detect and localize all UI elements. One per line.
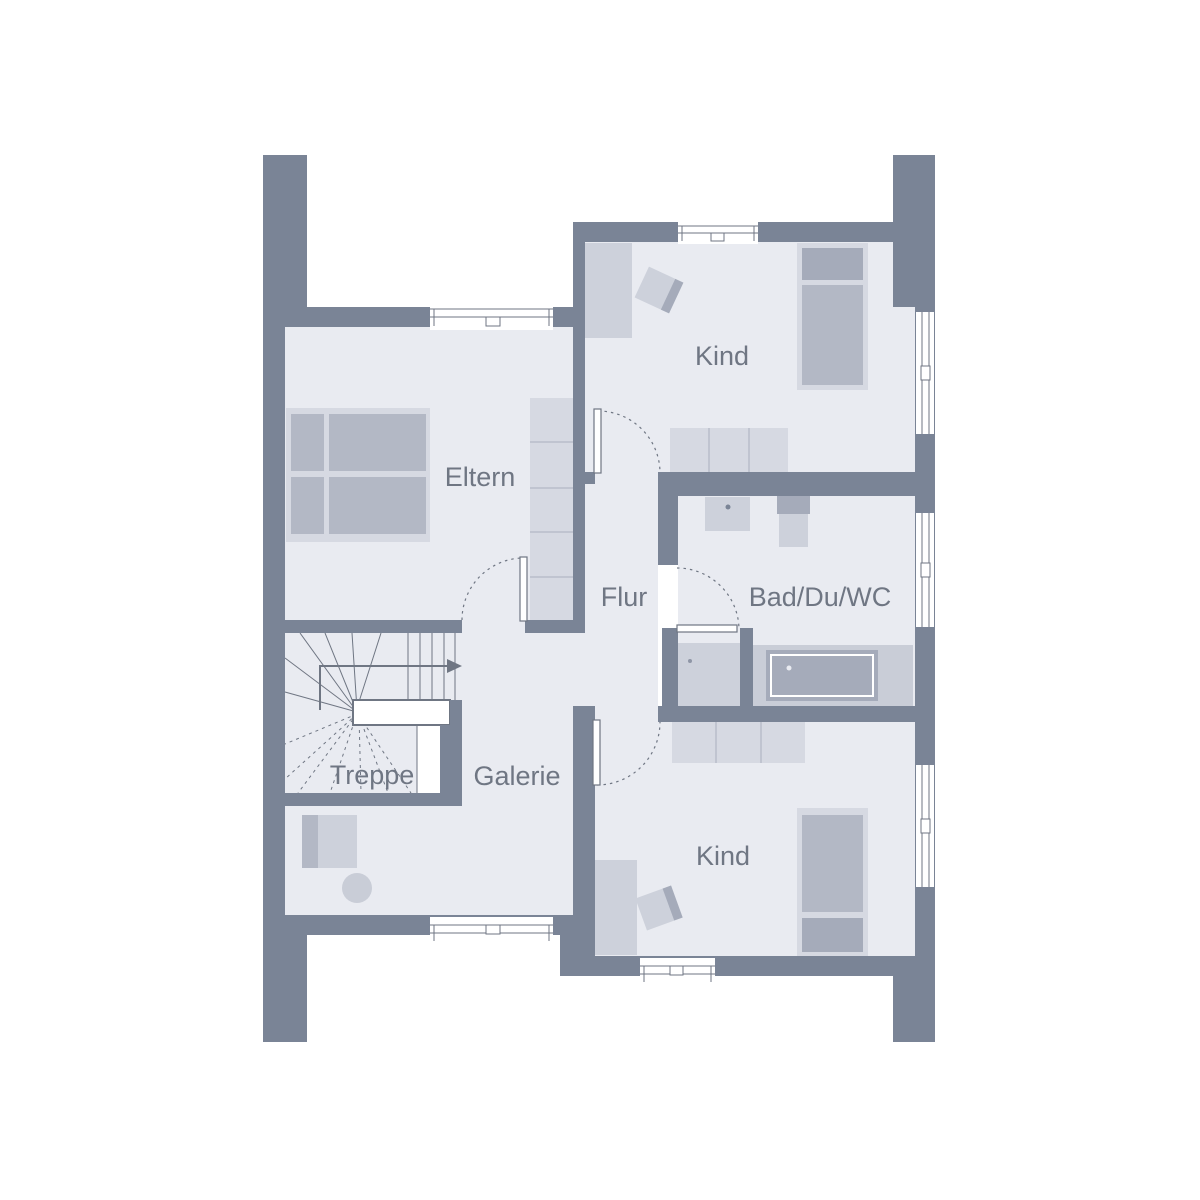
dresser xyxy=(672,722,805,763)
wall-kind-bottom-south xyxy=(583,956,935,976)
room-label-kind-bottom: Kind xyxy=(696,841,750,871)
room-label-bad: Bad/Du/WC xyxy=(749,582,892,612)
bed-pillow xyxy=(802,248,863,280)
room-label-kind-top: Kind xyxy=(695,341,749,371)
wall-treppe-east xyxy=(440,725,462,806)
wall-bad-west-lower xyxy=(662,628,678,708)
wall-kind-bottom-west xyxy=(573,706,595,976)
wall-bad-north xyxy=(658,472,915,496)
room-label-eltern: Eltern xyxy=(445,462,516,492)
window-kind-bottom-east xyxy=(916,765,934,887)
wall-pillar-top-left xyxy=(263,155,307,307)
armchair-backrest xyxy=(302,815,318,868)
bathtub-drain-dot xyxy=(787,666,792,671)
wall-treppe-south xyxy=(263,793,462,806)
toilet-bowl xyxy=(779,514,808,547)
shower-drain-dot xyxy=(688,659,692,663)
room-label-galerie: Galerie xyxy=(473,761,560,791)
wall-treppe-east-top xyxy=(450,700,462,725)
wall-bad-south xyxy=(658,706,915,722)
wall-doorway-cap-kind-top xyxy=(585,472,595,484)
floor-plan: Eltern Kind Flur Bad/Du/WC Treppe Galeri… xyxy=(0,0,1200,1200)
wall-eltern-south-left xyxy=(263,620,462,633)
window-galerie-south xyxy=(430,917,553,943)
bed-mattress xyxy=(802,285,863,385)
toilet-tank xyxy=(777,496,810,514)
bed-pillow xyxy=(291,477,324,534)
bed-pillow xyxy=(802,918,863,952)
bed-pillow xyxy=(291,414,324,471)
wardrobe-shelf xyxy=(530,398,575,620)
bed-mattress xyxy=(329,477,426,534)
room-label-treppe: Treppe xyxy=(330,760,415,790)
wall-eltern-south-right xyxy=(525,620,585,633)
bed-mattress xyxy=(329,414,426,471)
shower xyxy=(678,643,740,706)
wardrobe xyxy=(584,243,632,338)
window-kind-bottom-south xyxy=(640,958,715,985)
stair-landing xyxy=(353,700,450,725)
wall-pillar-top-right xyxy=(893,155,935,307)
window-eltern-north xyxy=(430,304,553,330)
room-label-flur: Flur xyxy=(601,582,648,612)
sink-faucet-dot xyxy=(726,505,731,510)
round-rug xyxy=(342,873,372,903)
wall-bad-west-upper xyxy=(658,472,678,565)
wall-center-spine xyxy=(573,242,585,633)
dresser xyxy=(670,428,788,473)
sink xyxy=(705,497,750,531)
bed-mattress xyxy=(802,815,863,912)
bathtub xyxy=(766,650,878,701)
window-kind-top-east xyxy=(916,312,934,434)
stair-well-strip xyxy=(417,725,440,793)
window-kind-top-north xyxy=(678,221,758,244)
window-bad-east xyxy=(916,513,934,627)
wall-shower-divider xyxy=(740,628,753,708)
wall-pillar-bottom-right xyxy=(893,976,935,1042)
